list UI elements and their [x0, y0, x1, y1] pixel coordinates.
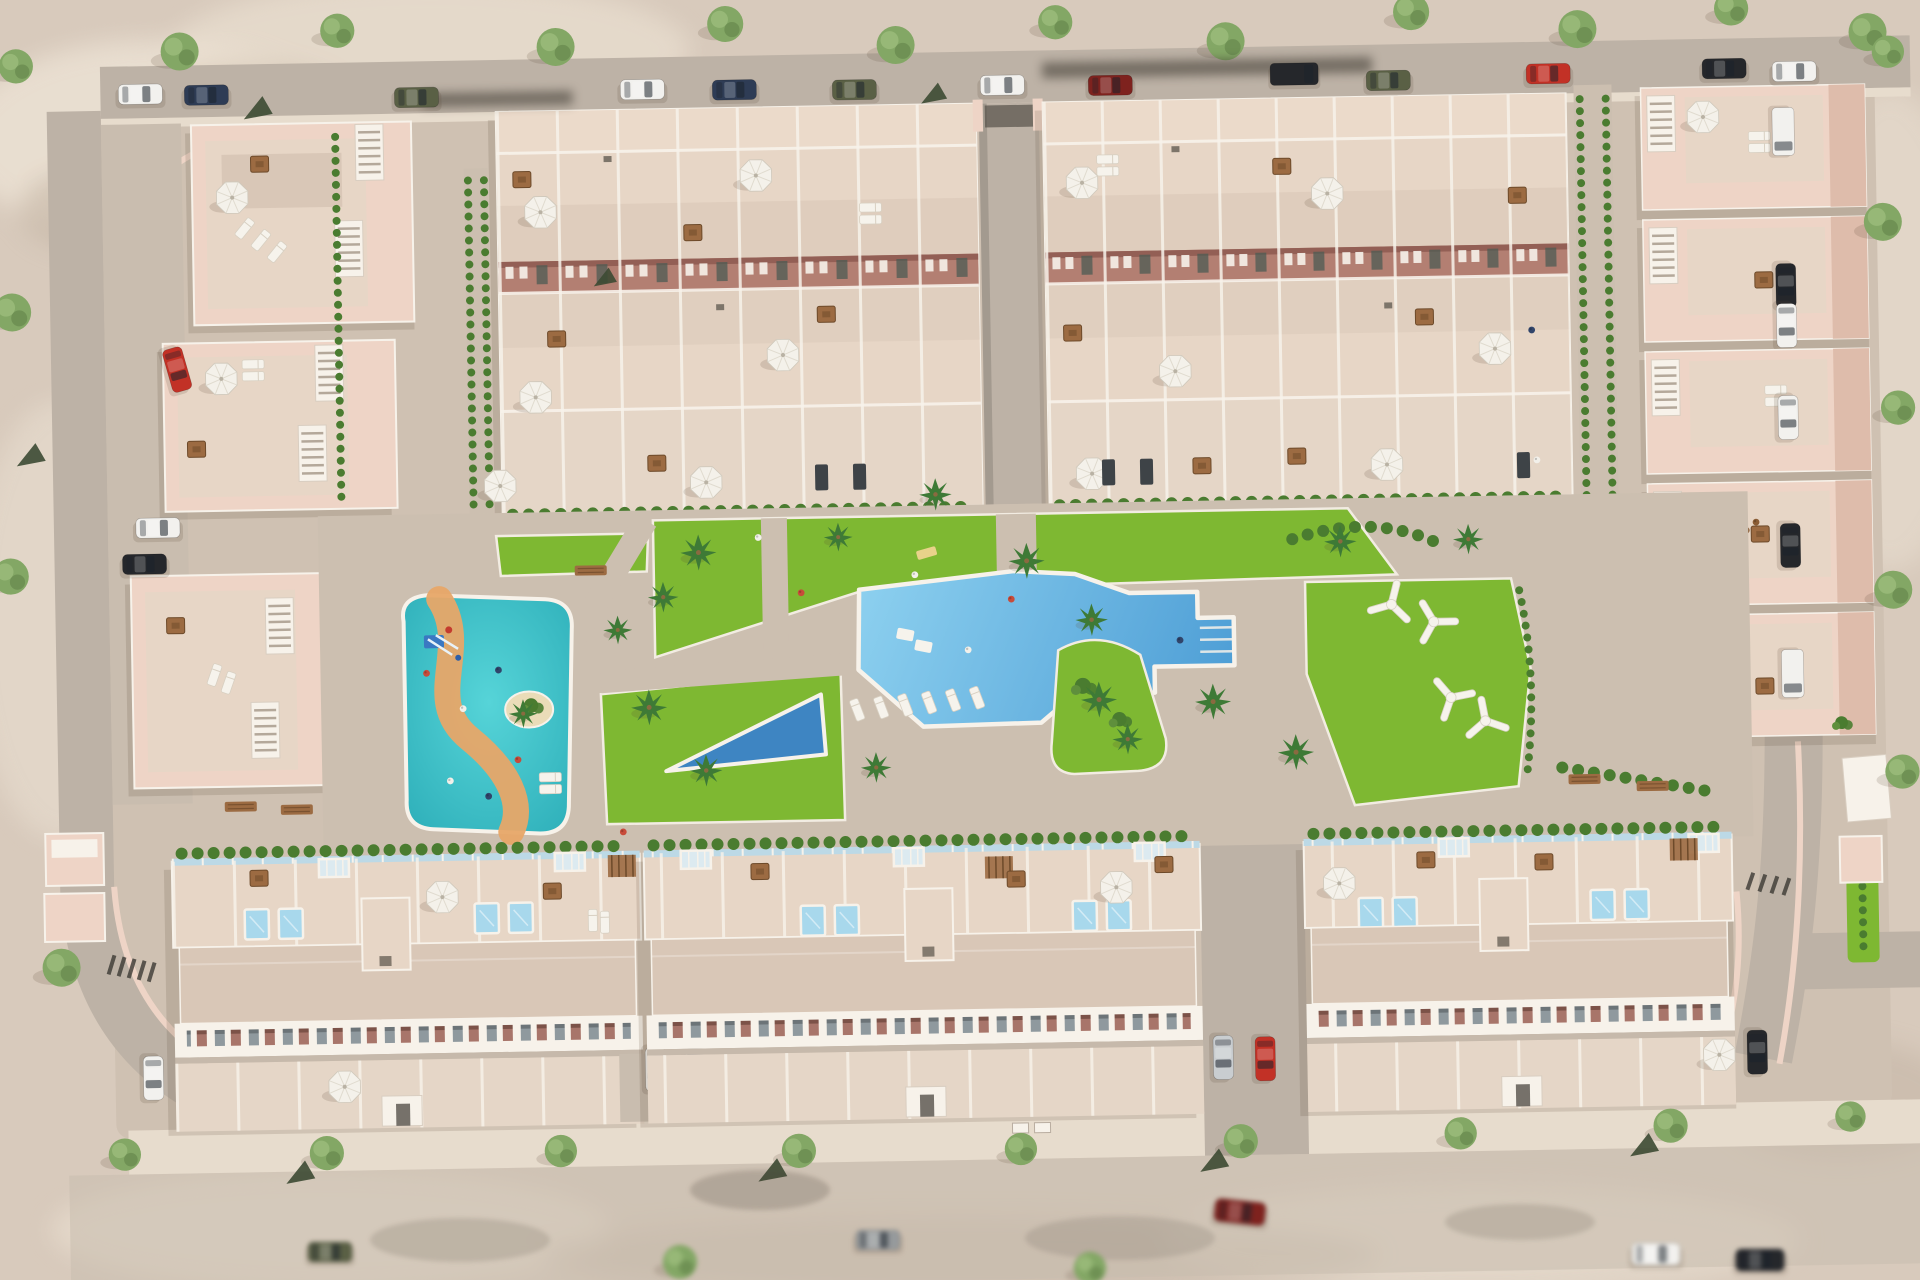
outdoor-kitchen — [815, 464, 828, 490]
villa-2 — [1637, 216, 1869, 353]
building-a-stair-1 — [355, 124, 384, 180]
parked-car-black — [1776, 520, 1801, 570]
top-townhouse-block-1 — [471, 98, 1050, 518]
parked-van-white — [1777, 647, 1804, 699]
top-townhouse-block-2 — [1035, 93, 1573, 508]
parked-car-white — [133, 518, 183, 543]
building-c-stair-1 — [265, 598, 294, 654]
parked-car-black — [1733, 1249, 1788, 1275]
masterplan-render — [0, 0, 1920, 1280]
rooftop-plunge-pool — [1073, 901, 1098, 931]
building-b-roof-table — [187, 441, 205, 457]
parked-car-silver — [1209, 1032, 1234, 1082]
render-stage: Bird's-eye 3D architectural visualizatio… — [0, 0, 1920, 1280]
gate-pillar — [973, 100, 984, 132]
kids-splash-lagoon — [403, 593, 576, 836]
park-bench — [281, 804, 313, 815]
entrance-gate — [985, 105, 1033, 128]
entry-canopy — [1842, 754, 1891, 822]
entry-pavilion-2 — [44, 893, 105, 942]
bottom-row-2 — [636, 836, 1205, 1140]
building-b-lounger — [242, 360, 264, 369]
parked-car-red — [1251, 1034, 1276, 1084]
outdoor-kitchen — [1517, 452, 1530, 478]
bottom-row-1 — [136, 846, 645, 1137]
parked-car-white — [1629, 1243, 1684, 1269]
development-scene — [0, 0, 1920, 1280]
rooftop-plunge-pool — [1393, 897, 1418, 927]
park-bench — [225, 801, 257, 812]
street-between-bottom-rows — [1200, 842, 1309, 1156]
rooftop-plunge-pool — [279, 909, 304, 939]
block1-party-walls — [496, 104, 983, 513]
villa-1 — [1634, 84, 1866, 220]
building-a-roof-table — [250, 156, 268, 172]
building-b-stair-2 — [298, 425, 327, 481]
rooftop-plunge-pool — [1107, 900, 1132, 930]
parked-car-white — [1774, 392, 1799, 442]
park-path-vertical — [774, 518, 777, 663]
outdoor-kitchen — [1102, 459, 1115, 485]
park-bench — [1568, 774, 1600, 785]
building-c-roof-table — [166, 618, 184, 634]
park-bench — [575, 565, 607, 576]
entry-booth — [1840, 836, 1883, 883]
entry-pavilion-1-canopy — [51, 839, 97, 858]
block2-party-walls — [1043, 93, 1573, 503]
outdoor-kitchen — [853, 464, 866, 490]
parked-car-olive — [305, 1242, 355, 1266]
building-b-lounger — [242, 372, 264, 381]
tree-shadow-band — [422, 91, 572, 108]
building-c-stair-2 — [251, 702, 280, 758]
parked-car-black — [1743, 1027, 1768, 1077]
rooftop-plunge-pool — [509, 903, 534, 933]
outdoor-kitchen — [1140, 459, 1153, 485]
park-bench — [1637, 781, 1669, 792]
parked-van-white — [1768, 105, 1795, 157]
rooftop-plunge-pool — [1624, 889, 1649, 919]
bottom-row-3 — [1295, 826, 1768, 1116]
villa-3 — [1639, 348, 1871, 484]
parked-car-white — [1772, 300, 1797, 350]
rooftop-plunge-pool — [475, 903, 500, 933]
rooftop-plunge-pool — [801, 905, 826, 935]
rooftop-plunge-pool — [835, 905, 860, 935]
parked-car-black — [119, 554, 169, 579]
rooftop-plunge-pool — [245, 909, 270, 939]
street-cabinet — [1034, 1122, 1050, 1132]
street-cabinet — [1012, 1123, 1028, 1133]
parked-car-white — [139, 1053, 164, 1103]
rooftop-plunge-pool — [1359, 898, 1384, 928]
parked-car-gray — [853, 1230, 903, 1254]
entry-median-hedge — [1862, 886, 1863, 954]
rooftop-plunge-pool — [1590, 890, 1615, 920]
